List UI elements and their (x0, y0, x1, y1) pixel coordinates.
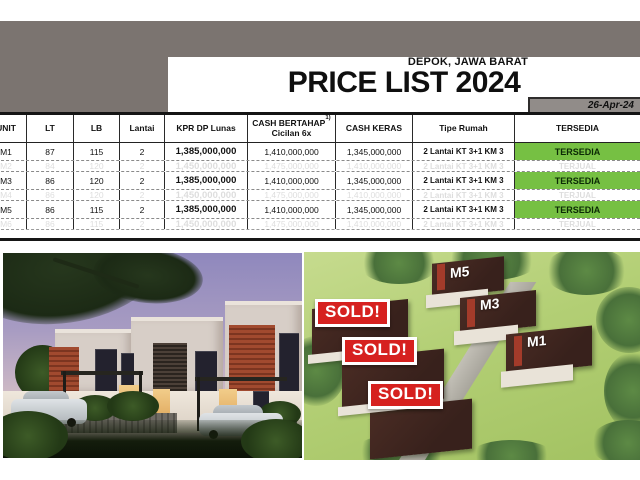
status-badge: TERSEDIA (515, 201, 640, 218)
cell-lb: 120 (74, 190, 120, 200)
unit-label-m5: M5 (450, 263, 469, 281)
cell-lt: 87 (27, 143, 74, 160)
tree (596, 287, 640, 353)
cell-keras: 1,410,000,000 (336, 161, 413, 171)
col-header-lb: LB (74, 115, 120, 142)
cell-bertahap: 1,475,000,000 (248, 190, 336, 200)
cell-lb: 115 (74, 143, 120, 160)
tree (590, 420, 640, 460)
cell-tipe: 2 Lantai KT 3+1 KM 3 (413, 172, 515, 189)
table-row-m5: M5 86 115 2 1,385,000,000 1,410,000,000 … (0, 201, 640, 219)
cell-lb: 115 (74, 201, 120, 218)
table-row-m2-sold: M2 84 120 2 1,450,000,000 1,475,000,000 … (0, 161, 640, 172)
wood-slat-panel (229, 325, 275, 395)
tree (604, 352, 640, 430)
carport-canopy (61, 371, 143, 375)
foreground-bush (241, 419, 302, 458)
footnote-superscript: 1) (325, 115, 330, 121)
table-row-m6-sold: M6 86 115 2 1,450,000,000 1,475,000,000 … (0, 219, 640, 230)
cell-tipe: 2 Lantai KT 3+1 KM 3 (413, 143, 515, 160)
cell-unit: M1 (0, 143, 27, 160)
cell-unit: M4 (0, 190, 27, 200)
cell-bertahap: 1,475,000,000 (248, 219, 336, 229)
col-header-unit: UNIT (0, 115, 27, 142)
chimney (514, 336, 522, 367)
col-header-kpr: KPR DP Lunas (165, 115, 248, 142)
cell-lt: 86 (27, 190, 74, 200)
table-row-m4-sold: M4 86 120 2 1,450,000,000 1,475,000,000 … (0, 190, 640, 201)
cell-kpr: 1,450,000,000 (165, 219, 248, 229)
sold-badge: SOLD! (368, 381, 443, 409)
exterior-render-image (3, 253, 302, 458)
cell-tipe: 2 Lantai KT 3+1 KM 3 (413, 219, 515, 229)
cell-kpr: 1,450,000,000 (165, 190, 248, 200)
status-badge: TERSEDIA (515, 172, 640, 189)
cash-bertahap-line2: Cicilan 6x (272, 129, 312, 139)
window (279, 333, 299, 393)
unit-label-m3: M3 (480, 295, 499, 313)
cell-tipe: 2 Lantai KT 3+1 KM 3 (413, 201, 515, 218)
date-badge: 26-Apr-24 (528, 97, 640, 112)
cell-lb: 120 (74, 161, 120, 171)
col-header-tipe-rumah: Tipe Rumah (413, 115, 515, 142)
site-plan-image: M5 M3 M1 SOLD! SOLD! SOLD! (304, 252, 640, 460)
shrub (107, 391, 159, 421)
cell-lantai: 2 (120, 201, 165, 218)
cell-keras: 1,410,000,000 (336, 190, 413, 200)
cell-unit: M2 (0, 161, 27, 171)
price-list-page: DEPOK, JAWA BARAT PRICE LIST 2024 26-Apr… (0, 0, 640, 480)
col-header-cash-bertahap: CASH BERTAHAP1) Cicilan 6x (248, 115, 336, 142)
cell-keras: 1,345,000,000 (336, 172, 413, 189)
col-header-lt: LT (27, 115, 74, 142)
table-bottom-border (0, 238, 640, 241)
cell-lantai: 2 (120, 161, 165, 171)
cell-lantai: 2 (120, 143, 165, 160)
table-row-m3: M3 86 120 2 1,385,000,000 1,410,000,000 … (0, 172, 640, 190)
col-header-lantai: Lantai (120, 115, 165, 142)
page-title: PRICE LIST 2024 (168, 66, 640, 100)
carport-canopy (195, 377, 287, 381)
cell-lt: 86 (27, 172, 74, 189)
cell-lt: 86 (27, 219, 74, 229)
cell-lantai: 2 (120, 219, 165, 229)
cell-lt: 84 (27, 161, 74, 171)
cell-tipe: 2 Lantai KT 3+1 KM 3 (413, 161, 515, 171)
cell-kpr: 1,385,000,000 (165, 143, 248, 160)
cell-lantai: 2 (120, 190, 165, 200)
cell-unit: M3 (0, 172, 27, 189)
price-table: UNIT LT LB Lantai KPR DP Lunas CASH BERT… (0, 112, 640, 230)
status-badge: TERSEDIA (515, 143, 640, 160)
sold-badge: SOLD! (315, 299, 390, 327)
status-badge: TERJUAL (515, 161, 640, 171)
cell-tipe: 2 Lantai KT 3+1 KM 3 (413, 190, 515, 200)
cell-bertahap: 1,475,000,000 (248, 161, 336, 171)
cell-keras: 1,345,000,000 (336, 201, 413, 218)
cell-unit: M6 (0, 219, 27, 229)
cell-bertahap: 1,410,000,000 (248, 172, 336, 189)
table-row-m1: M1 87 115 2 1,385,000,000 1,410,000,000 … (0, 143, 640, 161)
cell-kpr: 1,450,000,000 (165, 161, 248, 171)
cell-bertahap: 1,410,000,000 (248, 143, 336, 160)
cell-bertahap: 1,410,000,000 (248, 201, 336, 218)
cell-keras: 1,345,000,000 (336, 143, 413, 160)
cell-kpr: 1,385,000,000 (165, 172, 248, 189)
col-header-cash-keras: CASH KERAS (336, 115, 413, 142)
chimney (467, 299, 475, 328)
cell-lb: 120 (74, 172, 120, 189)
cell-lantai: 2 (120, 172, 165, 189)
tree (469, 440, 554, 460)
col-header-tersedia: TERSEDIA (515, 115, 640, 142)
tree (359, 252, 439, 284)
unit-label-m1: M1 (527, 332, 546, 350)
cell-lt: 86 (27, 201, 74, 218)
cell-keras: 1,410,000,000 (336, 219, 413, 229)
status-badge: TERJUAL (515, 190, 640, 200)
table-header-row: UNIT LT LB Lantai KPR DP Lunas CASH BERT… (0, 115, 640, 143)
cell-unit: M5 (0, 201, 27, 218)
sold-badge: SOLD! (342, 337, 417, 365)
cell-lb: 115 (74, 219, 120, 229)
cell-kpr: 1,385,000,000 (165, 201, 248, 218)
chimney (437, 264, 445, 291)
status-badge: TERJUAL (515, 219, 640, 229)
